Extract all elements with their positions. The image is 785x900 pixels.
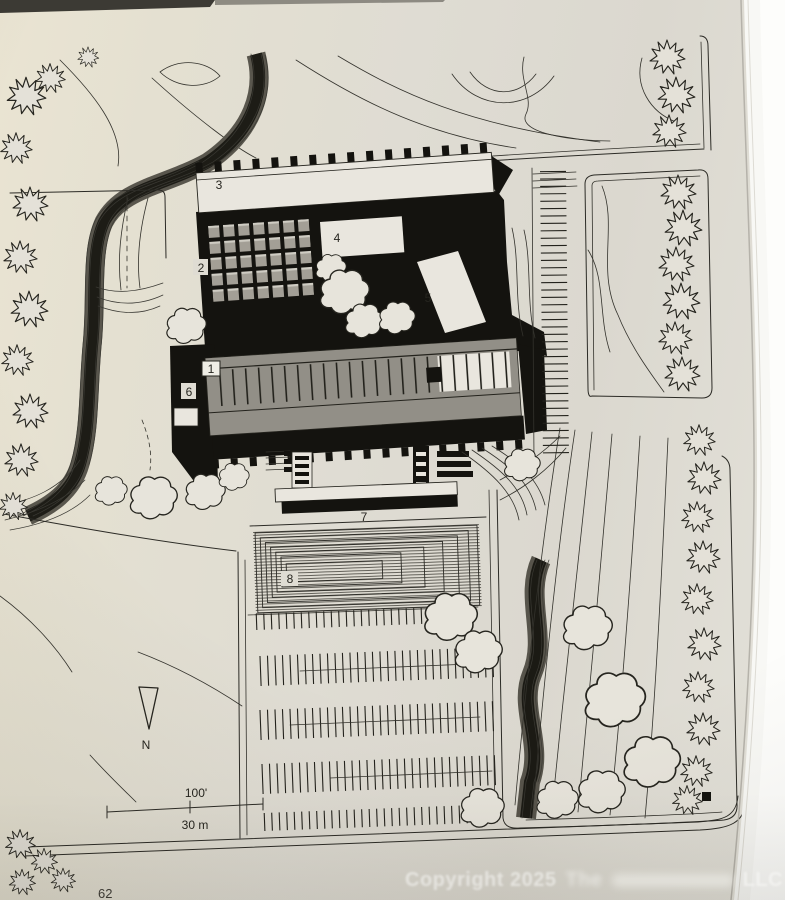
copyright-watermark: Copyright 2025 The LLC	[405, 869, 783, 892]
site-marker	[702, 792, 711, 801]
site-plan-drawing: 1 2 3 4 5 6 7 8 N 100' 30 m	[0, 0, 785, 900]
north-label: N	[142, 738, 151, 752]
building-label-8: 8	[287, 572, 294, 586]
photo-top-edge	[0, 0, 445, 13]
building-6	[174, 408, 198, 426]
watermark-suffix: LLC	[743, 869, 783, 892]
north-arrow: N	[139, 687, 158, 752]
contour-lines-southwest	[0, 596, 242, 802]
trees-stream-delta	[95, 464, 249, 519]
building-2	[208, 219, 314, 304]
building-label-5: 5	[425, 291, 432, 305]
parking-lot-south	[248, 607, 500, 822]
building-label-1: 1	[208, 362, 215, 376]
book-page-photo: 1 2 3 4 5 6 7 8 N 100' 30 m 62 Copyright…	[0, 0, 785, 900]
building-label-3: 3	[216, 178, 223, 192]
watermark-prefix: Copyright 2025	[405, 869, 556, 892]
scale-label-metric: 30 m	[182, 818, 209, 832]
trees-northeast	[650, 40, 702, 391]
building-label-2: 2	[198, 261, 205, 275]
watermark-middle: The	[565, 869, 602, 892]
contour-lines-top	[60, 56, 676, 166]
building-4	[320, 216, 404, 258]
building-label-6: 6	[186, 385, 193, 399]
building-1	[204, 329, 525, 469]
building-label-7: 7	[361, 510, 368, 524]
building-label-4: 4	[334, 231, 341, 245]
page-number: 62	[98, 886, 112, 900]
page-edge	[731, 0, 785, 900]
scale-label-imperial: 100'	[185, 786, 207, 800]
watermark-smudge	[612, 874, 734, 887]
